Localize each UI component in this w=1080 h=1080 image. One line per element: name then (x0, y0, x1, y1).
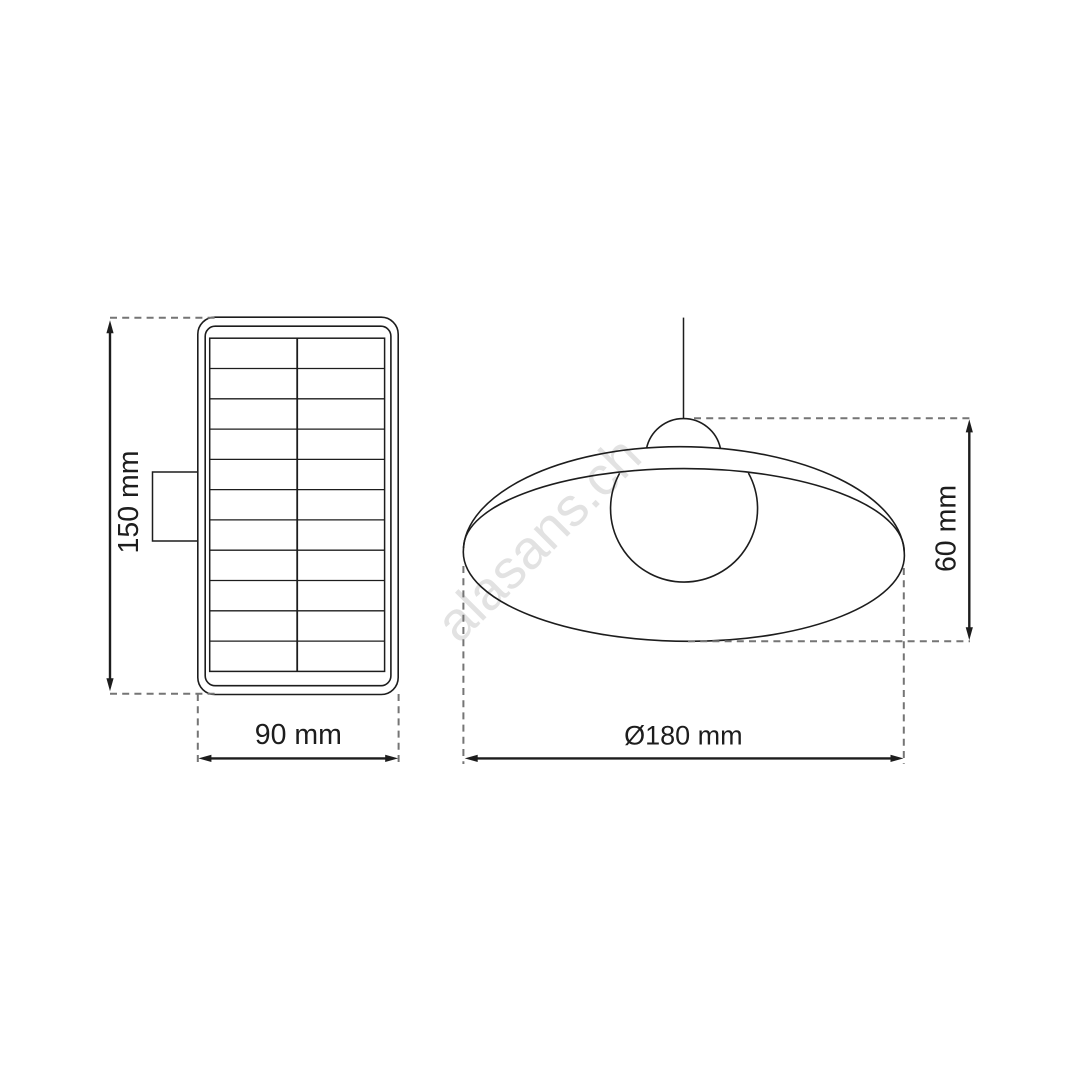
svg-text:60 mm: 60 mm (931, 485, 963, 572)
svg-text:150 mm: 150 mm (113, 451, 145, 554)
svg-text:Ø180 mm: Ø180 mm (624, 721, 743, 751)
svg-text:90 mm: 90 mm (255, 719, 342, 751)
